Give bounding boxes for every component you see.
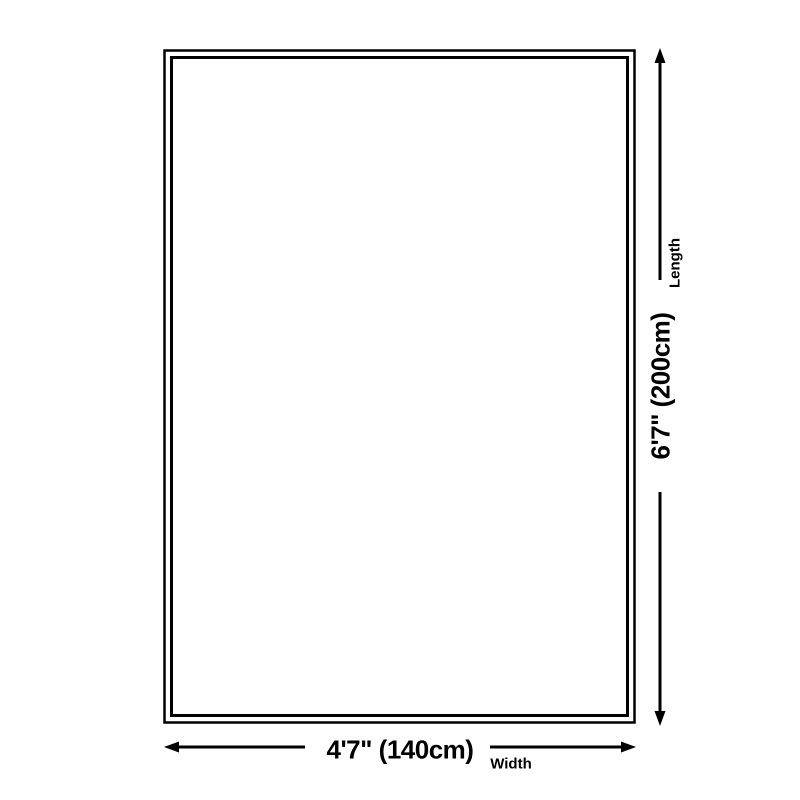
arrow-up-icon <box>655 48 666 63</box>
length-value-label: 6'7" (200cm) <box>646 313 677 460</box>
arrow-down-icon <box>655 711 666 726</box>
length-axis-label: Length <box>667 238 684 288</box>
width-value-label: 4'7" (140cm) <box>327 735 474 766</box>
product-outline <box>165 51 635 723</box>
product-outline-inner <box>172 58 628 716</box>
arrow-left-icon <box>164 742 179 753</box>
width-axis-label: Width <box>490 756 532 773</box>
diagram-drawing <box>0 0 800 800</box>
arrow-right-icon <box>621 742 636 753</box>
dimension-diagram: 6'7" (200cm) Length 4'7" (140cm) Width <box>0 0 800 800</box>
product-outline-outer <box>165 51 635 723</box>
